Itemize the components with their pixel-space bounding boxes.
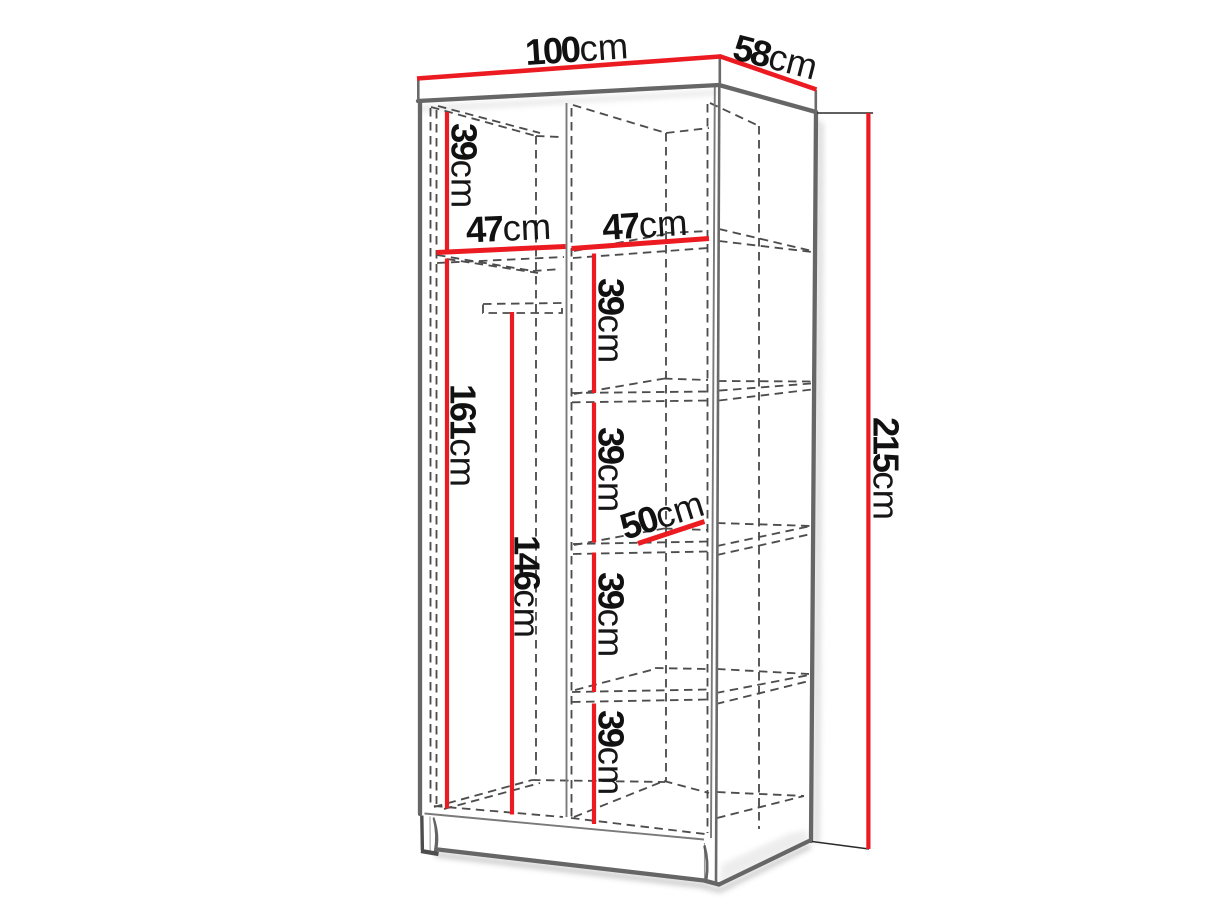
svg-text:39cm: 39cm xyxy=(444,123,485,208)
svg-text:146cm: 146cm xyxy=(507,535,548,638)
svg-text:39cm: 39cm xyxy=(591,572,632,657)
svg-text:39cm: 39cm xyxy=(591,710,632,795)
svg-text:100cm: 100cm xyxy=(524,25,630,73)
svg-text:39cm: 39cm xyxy=(591,427,632,512)
svg-text:47cm: 47cm xyxy=(601,202,689,248)
svg-text:215cm: 215cm xyxy=(866,417,907,520)
svg-text:47cm: 47cm xyxy=(465,206,552,251)
svg-text:161cm: 161cm xyxy=(443,384,484,487)
svg-text:39cm: 39cm xyxy=(591,278,632,363)
